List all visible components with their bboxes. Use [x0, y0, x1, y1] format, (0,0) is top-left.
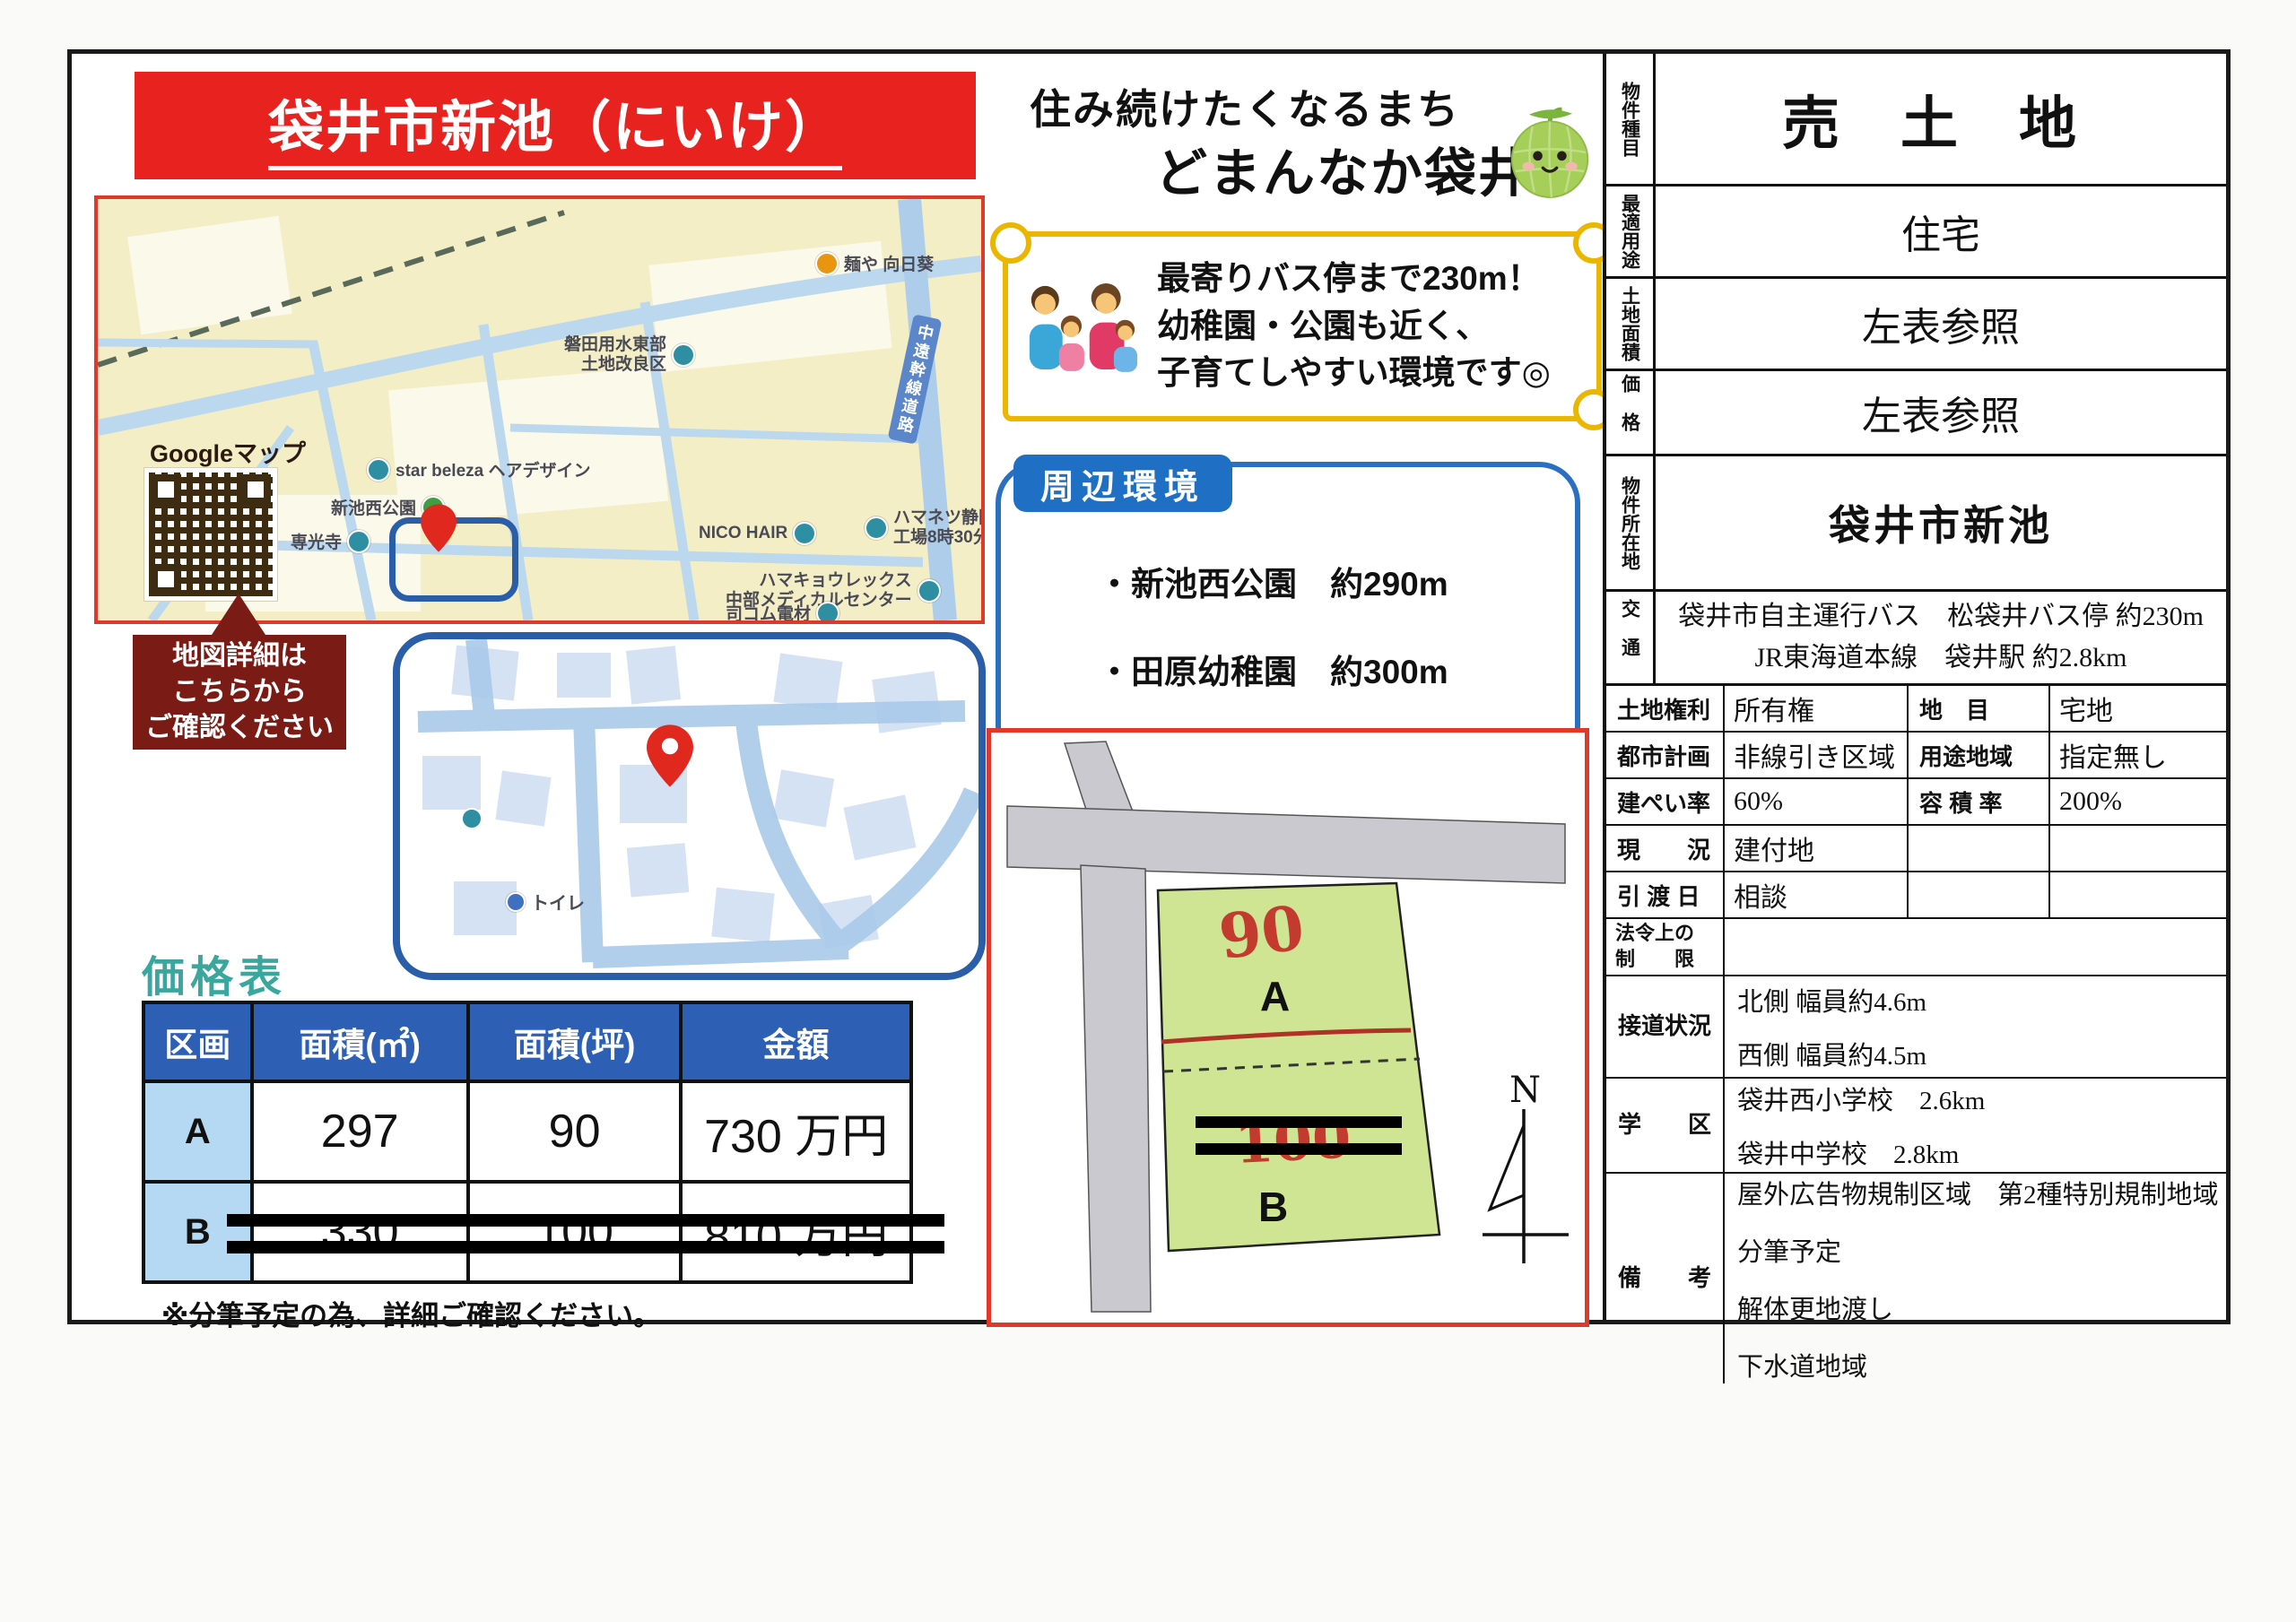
row-school-district: 学 区 袋井西小学校 2.6km 袋井中学校 2.8km — [1606, 1079, 2226, 1174]
poi-icon — [347, 530, 370, 553]
poi-icon — [672, 343, 695, 367]
flyer-sheet: 袋井市新池（にいけ） 麺や 向 — [67, 49, 2231, 1324]
surroundings-item: ・田原幼稚園 約300m — [1098, 645, 1575, 693]
row-handover-date: 引 渡 日 相談 — [1606, 872, 2226, 919]
location-pin-icon — [647, 724, 693, 787]
row-best-use: 最適用途 住宅 — [1606, 186, 2226, 279]
road-line1: 北側 幅員約4.6m — [1737, 981, 2226, 1019]
plot-a-m2: 297 — [252, 1081, 468, 1182]
col-header-price: 金額 — [681, 1002, 911, 1081]
map-poi-temple: 専光寺 — [291, 529, 370, 553]
row-road-contact: 接道状況 北側 幅員約4.6m 西側 幅員約4.5m — [1606, 976, 2226, 1079]
plot-a-price: 730 万円 — [681, 1081, 911, 1182]
remark-line: 下水道地域 — [1737, 1346, 2226, 1383]
plot-b-m2: 330 — [252, 1182, 468, 1282]
map-poi-hamanetsu: ハマネツ静岡 工場8時30分 — [865, 508, 985, 548]
catch-copy-line1: 住み続けたくなるまち — [1030, 77, 1460, 136]
road-line2: 西側 幅員約4.5m — [1737, 1035, 2226, 1072]
toilet-icon — [506, 892, 526, 912]
map-poi-denzai: 司コム電材 — [726, 601, 839, 624]
qr-finder — [151, 474, 181, 505]
poi-icon — [865, 516, 888, 540]
banner-line3: 子育てしやすい環境です◎ — [1157, 350, 1551, 397]
feature-banner: 最寄りバス停まで230m！ 幼稚園・公園も近く、 子育てしやすい環境です◎ — [1003, 231, 1602, 421]
access-line2: JR東海道本線 袋井駅 約2.8km — [1754, 638, 2126, 680]
catch-copy-line2: どまんなか袋井 — [1155, 131, 1532, 206]
remark-line: 分筆予定 — [1737, 1231, 2226, 1269]
price-table-wrap: 区画 面積(㎡) 面積(坪) 金額 A 297 90 730 万円 B 330 … — [142, 1001, 920, 1284]
scanned-flyer-page: 袋井市新池（にいけ） 麺や 向 — [0, 0, 2296, 1622]
sold-strike-bar — [227, 1214, 944, 1227]
price-row-a: A 297 90 730 万円 — [143, 1081, 911, 1182]
plot-b-price: 810 万円 — [681, 1182, 911, 1282]
google-map-label: Googleマップ — [150, 434, 306, 469]
row-label: 物件所在地 — [1606, 456, 1656, 589]
callout-arrow-icon — [212, 594, 265, 635]
detail-map-toilet-label: トイレ — [506, 889, 585, 915]
row-land-rights: 土地権利 所有権 地 目 宅地 — [1606, 686, 2226, 733]
price-note: ※分筆予定の為、詳細ご確認ください。 — [161, 1293, 661, 1333]
poi-icon — [815, 252, 839, 275]
price-table-heading: 価格表 — [142, 941, 287, 1004]
poi-icon — [793, 522, 816, 545]
sold-strike-bar — [227, 1241, 944, 1253]
row-access: 交通 袋井市自主運行バス 松袋井バス停 約230m JR東海道本線 袋井駅 約2… — [1606, 592, 2226, 686]
detail-map-roads — [400, 639, 978, 973]
best-use-value: 住宅 — [1656, 186, 2226, 276]
price-value: 左表参照 — [1656, 371, 2226, 454]
row-label: 物件種目 — [1606, 54, 1656, 184]
family-icon — [1026, 280, 1139, 373]
page-title: 袋井市新池（にいけ） — [268, 82, 842, 170]
map-poi-hair-salon: star beleza ヘアデザイン — [367, 457, 591, 481]
banner-line1: 最寄りバス停まで230m！ — [1157, 256, 1551, 303]
row-label: 価格 — [1606, 371, 1656, 454]
location-pin-icon — [421, 504, 457, 552]
qr-finder — [240, 474, 271, 505]
strike-bar — [1196, 1116, 1402, 1128]
svg-text:N: N — [1509, 1070, 1541, 1111]
melon-mascot-icon — [1507, 104, 1593, 201]
scroll-curl-icon — [990, 222, 1031, 264]
plot-b-tsubo: 100 — [468, 1182, 682, 1282]
location-value: 袋井市新池 — [1656, 456, 2226, 589]
plot-b-area-value: 100 — [1233, 1105, 1352, 1176]
poi-icon — [816, 602, 839, 625]
price-row-b: B 330 100 810 万円 — [143, 1182, 911, 1282]
col-header-area-tsubo: 面積(坪) — [468, 1002, 682, 1081]
area-map: 麺や 向日葵 磐田用水東部 土地改良区 star beleza ヘアデザイン 新… — [94, 195, 985, 624]
surroundings-item: ・新池西公園 約290m — [1098, 557, 1575, 605]
poi-icon — [918, 579, 941, 603]
remark-line: 解体更地渡し — [1737, 1288, 2226, 1326]
map-detail-callout: 地図詳細は こちらから ご確認ください — [133, 635, 346, 750]
map-poi-nico-hair: NICO HAIR — [699, 522, 816, 545]
row-city-planning: 都市計画 非線引き区域 用途地域 指定無し — [1606, 733, 2226, 779]
plot-a-label: A — [1260, 973, 1290, 1019]
plot-a-area-value: 90 — [1215, 892, 1309, 974]
row-current-state: 現 況 建付地 — [1606, 826, 2226, 872]
plot-a-cell: A — [143, 1081, 252, 1182]
row-label: 最適用途 — [1606, 186, 1656, 276]
row-land-area: 土地面積 左表参照 — [1606, 279, 2226, 371]
row-location: 物件所在地 袋井市新池 — [1606, 456, 2226, 592]
row-coverage-ratio: 建ぺい率 60% 容 積 率 200% — [1606, 779, 2226, 826]
plot-b-cell: B — [143, 1182, 252, 1282]
remark-line: 屋外広告物規制区域 第2種特別規制地域 — [1737, 1174, 2226, 1211]
land-area-value: 左表参照 — [1656, 279, 2226, 369]
map-poi-ramen: 麺や 向日葵 — [815, 251, 934, 275]
poi-icon — [367, 458, 390, 481]
map-poi-irrigation: 磐田用水東部 土地改良区 — [564, 335, 695, 375]
row-property-type: 物件種目 売 土 地 — [1606, 54, 2226, 186]
property-spec-table: 物件種目 売 土 地 最適用途 住宅 土地面積 左表参照 価格 左表参照 物件所… — [1603, 54, 2226, 1320]
strike-bar — [1196, 1143, 1402, 1155]
col-header-plot: 区画 — [143, 1002, 252, 1081]
row-remarks: 備 考 屋外広告物規制区域 第2種特別規制地域 分筆予定 解体更地渡し 下水道地… — [1606, 1174, 2226, 1383]
col-header-area-m2: 面積(㎡) — [252, 1002, 468, 1081]
surroundings-box: 周辺環境 ・新池西公園 約290m ・田原幼稚園 約300m ・ピアゴ袋井店 約… — [996, 462, 1580, 767]
school-line2: 袋井中学校 2.8km — [1737, 1133, 2226, 1171]
banner-line2: 幼稚園・公園も近く、 — [1157, 303, 1551, 351]
row-legal-restrictions: 法令上の 制 限 — [1606, 919, 2226, 976]
plot-b-label: B — [1258, 1184, 1288, 1230]
row-label: 交通 — [1606, 592, 1656, 683]
access-line1: 袋井市自主運行バス 松袋井バス停 約230m — [1678, 596, 2204, 638]
title-banner: 袋井市新池（にいけ） — [135, 72, 976, 179]
qr-finder — [151, 564, 181, 594]
surroundings-title: 周辺環境 — [1013, 455, 1232, 512]
price-table-header-row: 区画 面積(㎡) 面積(坪) 金額 — [143, 1002, 911, 1081]
plot-a-tsubo: 90 — [468, 1081, 682, 1182]
row-price: 価格 左表参照 — [1606, 371, 2226, 456]
poi-icon — [462, 809, 482, 828]
school-line1: 袋井西小学校 2.6km — [1737, 1080, 2226, 1117]
qr-code — [144, 468, 277, 601]
property-type-value: 売 土 地 — [1656, 54, 2226, 184]
detail-map: トイレ — [393, 632, 986, 980]
plot-diagram-drawing: 90 A 100 B N — [991, 733, 1585, 1323]
plot-diagram: 90 A 100 B N — [987, 728, 1589, 1327]
row-label: 土地面積 — [1606, 279, 1656, 369]
